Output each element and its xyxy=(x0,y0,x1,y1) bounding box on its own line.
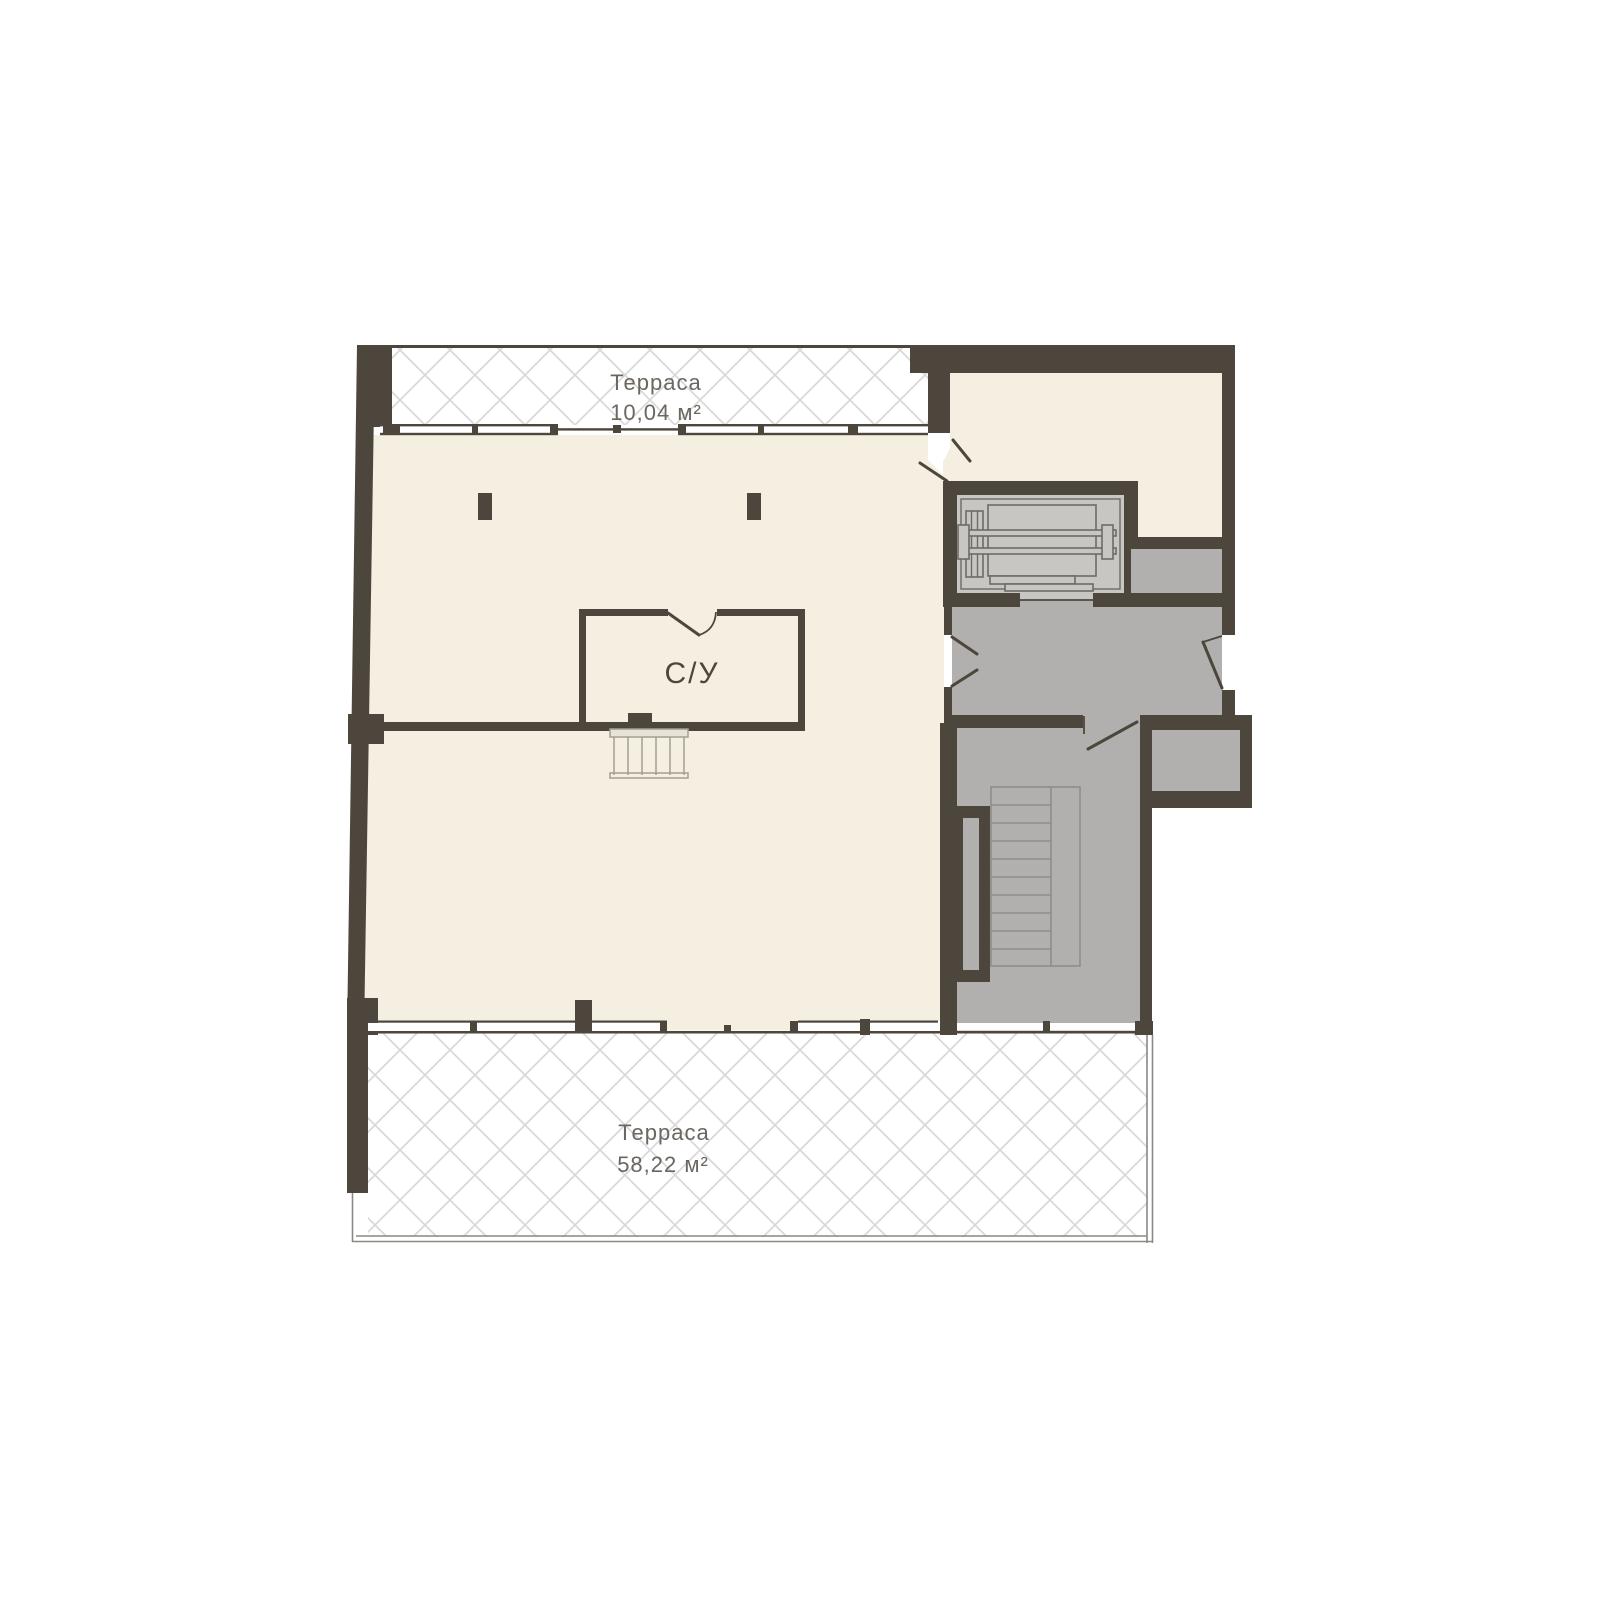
column-stub xyxy=(747,493,761,520)
floor-plan-svg: Терраса 10,04 м² С/У Терраса 58,22 м² xyxy=(0,0,1600,1600)
floor-plan-page: Терраса 10,04 м² С/У Терраса 58,22 м² xyxy=(0,0,1600,1600)
column-stub xyxy=(575,1000,592,1033)
column-stub xyxy=(478,493,492,520)
terrace-bottom-area: 58,22 м² xyxy=(617,1152,709,1177)
storage-room-floor xyxy=(1131,549,1222,593)
duct-shaft xyxy=(952,806,990,982)
window-band-top xyxy=(380,424,928,435)
terrace-border-right xyxy=(1147,1035,1153,1243)
hall-floor xyxy=(952,607,1222,723)
bathroom-label: С/У xyxy=(664,657,719,690)
top-wall xyxy=(910,345,1235,373)
stairwell-right-wall xyxy=(1140,808,1152,1035)
side-room-floor xyxy=(1152,730,1240,791)
bathroom-stub xyxy=(628,713,652,723)
terrace-top-area: 10,04 м² xyxy=(610,400,702,425)
terrace-top-label: Терраса xyxy=(610,370,701,395)
side-room xyxy=(1135,715,1252,1035)
bottom-terrace-hatch xyxy=(352,1033,1153,1243)
terrace-bottom-label: Терраса xyxy=(618,1120,709,1145)
storage-room-top-wall xyxy=(1124,537,1222,549)
